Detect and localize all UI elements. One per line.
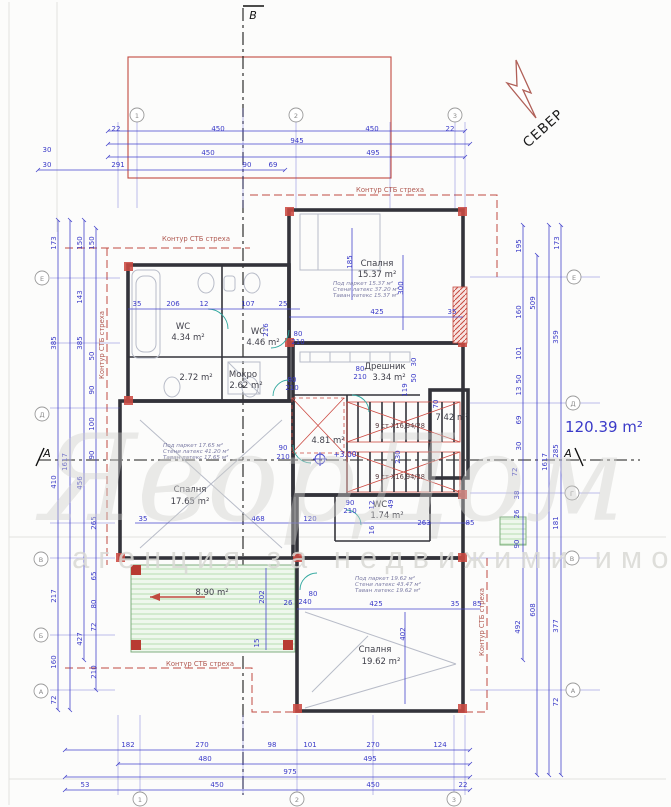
dimension-label: 12: [200, 300, 209, 308]
dimension-label: 50: [88, 352, 96, 361]
dimension-label: 300: [397, 281, 405, 294]
grid-row-right-2: Д: [570, 400, 575, 408]
dimension-label: 69: [269, 161, 278, 169]
dimension-label: 50: [515, 375, 523, 384]
dimension-label: 90: [88, 386, 96, 395]
room-bedroom-bottom-note: Таван латекс 19.62 м²: [355, 587, 421, 594]
grid-row-left-4: Б: [39, 632, 43, 640]
dimension-label: 385: [76, 336, 84, 349]
dimension-label: 22: [112, 125, 121, 133]
grid-col-1: 1: [135, 112, 139, 120]
dimension-label: 35: [448, 308, 457, 316]
room-bedroom-bottom-area: 19.62 m²: [362, 657, 401, 667]
floor-plan-canvas: В А А: [0, 0, 671, 807]
north-label: СЕВЕР: [520, 106, 567, 151]
dimension-label: 270: [366, 741, 379, 749]
dimension-label: 119: [401, 383, 409, 396]
dimension-label: 240: [298, 598, 311, 606]
dimension-label: 70: [432, 400, 440, 409]
dimension-label: 495: [366, 149, 379, 157]
room-wc-mid-area: 4.46 m²: [246, 338, 279, 348]
dimension-label: 143: [76, 290, 84, 303]
room-wc-left-area: 4.34 m²: [171, 333, 204, 343]
dimension-label: 80: [294, 330, 303, 338]
grid-row-left-5: А: [39, 688, 44, 696]
dimension-label: 217: [50, 589, 58, 602]
section-marker-top: В: [249, 9, 257, 22]
dimension-label: 450: [210, 781, 223, 789]
dimension-label: 150: [76, 236, 84, 249]
room-bedroom-bottom-name: Спалня: [359, 645, 392, 655]
dimension-label: 72: [50, 696, 58, 705]
dimension-label: 80: [90, 600, 98, 609]
room-bedroom-top-area: 15.37 m²: [358, 270, 397, 280]
grid-row-right-1: Е: [572, 274, 576, 282]
dimension-label: 216: [262, 323, 270, 337]
dimension-label: 427: [76, 632, 84, 645]
grid-row-left-3: В: [39, 556, 43, 564]
dimension-label: 210: [291, 338, 304, 346]
dimension-label: 173: [50, 236, 58, 249]
dimension-label: 509: [529, 296, 537, 309]
room-bedroom-top-name: Спалня: [361, 259, 394, 269]
grid-col-3: 3: [453, 112, 457, 120]
dimension-label: 402: [399, 627, 407, 640]
grid-row-right-5: А: [571, 687, 576, 695]
dimension-label: 270: [195, 741, 208, 749]
grid-col-2: 2: [294, 112, 298, 120]
dimension-label: 22: [446, 125, 455, 133]
dimension-label: 72: [90, 623, 98, 632]
grid-col-2b: 2: [295, 796, 299, 804]
north-arrow-icon: [507, 60, 536, 118]
dimension-label: 206: [166, 300, 180, 308]
dimension-label: 210: [285, 384, 298, 392]
dimension-label: 101: [515, 346, 523, 359]
watermark-footer: агенция за недвижими имоти: [72, 540, 671, 575]
dimension-label: 124: [433, 741, 447, 749]
dimension-label: 425: [369, 600, 382, 608]
dimension-label: 480: [198, 755, 211, 763]
dimension-label: 182: [121, 741, 134, 749]
dimension-label: 195: [515, 239, 523, 252]
eave-label-right: Контур СТБ стреха: [478, 588, 486, 656]
dimension-label: 385: [50, 336, 58, 349]
dimension-label: 210: [353, 373, 366, 381]
dimension-label: 72: [552, 698, 560, 707]
dimension-label: 160: [50, 655, 58, 668]
dimension-label: 30: [43, 146, 52, 154]
dimension-label: 107: [241, 300, 254, 308]
room-terrace-area: 8.90 m²: [195, 588, 228, 598]
dimension-label: 90: [243, 161, 252, 169]
room-dreshnik-area: 3.34 m²: [372, 373, 405, 383]
dimension-label: 80: [356, 365, 365, 373]
dimension-label: 30: [410, 358, 418, 367]
dimension-label: 25: [279, 300, 288, 308]
dimension-label: 15: [253, 639, 261, 648]
dimension-label: 425: [370, 308, 383, 316]
dimension-label: 975: [283, 768, 296, 776]
room-bedroom-top-note: Стени латекс 37.20 м²: [333, 286, 400, 293]
dimension-label: 98: [268, 741, 277, 749]
dimension-label: 53: [81, 781, 90, 789]
room-wc-left-name: WC: [176, 322, 190, 332]
dimension-label: 492: [514, 620, 522, 633]
dimension-label: 450: [366, 781, 379, 789]
watermark-script: ЯворДом 1: [35, 410, 671, 549]
dimension-label: 450: [211, 125, 224, 133]
room-dreshnik-name: Дрешник: [364, 362, 405, 372]
eave-label-top: Контур СТБ стреха: [356, 186, 424, 194]
dimension-label: 80: [309, 590, 318, 598]
dimension-label: 945: [290, 137, 303, 145]
dimension-label: 450: [201, 149, 214, 157]
dimension-label: 101: [303, 741, 316, 749]
dimension-label: 80: [288, 376, 297, 384]
dimension-label: 377: [552, 619, 560, 632]
dimension-label: 291: [111, 161, 124, 169]
dimension-label: 85: [473, 600, 482, 608]
eave-label-upper-left: Контур СТБ стреха: [162, 235, 230, 243]
room-mokro-area: 2.62 m²: [229, 381, 262, 391]
grid-col-1b: 1: [138, 796, 142, 804]
dimension-label: 185: [346, 255, 354, 268]
dimension-label: 30: [43, 161, 52, 169]
dimension-label: 608: [529, 603, 537, 616]
dimension-label: 173: [553, 236, 561, 249]
eave-label-bottom: Контур СТБ стреха: [166, 660, 234, 668]
room-bedroom-bottom-note: Под паркет 19.62 м²: [355, 575, 416, 582]
dimension-label: 50: [410, 374, 418, 383]
room-hall-left-area: 2.72 m²: [179, 373, 212, 383]
room-bedroom-top-note: Таван латекс 15.37 м²: [333, 292, 399, 299]
dimension-label: 359: [552, 330, 560, 343]
dimension-label: 495: [363, 755, 376, 763]
dimension-label: 150: [88, 236, 96, 249]
dimension-label: 450: [365, 125, 378, 133]
dimension-label: 22: [459, 781, 468, 789]
room-bedroom-bottom-note: Стени латекс 43.47 м²: [355, 581, 422, 588]
grid-row-left-1: Е: [40, 275, 44, 283]
grid-col-3b: 3: [452, 796, 456, 804]
blueprint-page: В А А: [0, 0, 671, 807]
room-mokro-name: Мокро: [229, 370, 257, 380]
room-bedroom-top-note: Под паркет 15.37 м²: [333, 280, 394, 287]
dimension-label: 210: [90, 665, 98, 678]
dimension-label: 35: [451, 600, 460, 608]
terrace: [131, 565, 295, 652]
dimension-label: 160: [515, 305, 523, 318]
dimension-label: 26: [284, 599, 293, 607]
dimension-label: 202: [258, 590, 266, 603]
dimension-label: 35: [133, 300, 142, 308]
dimension-label: 13: [515, 387, 523, 396]
eave-label-left: Контур СТБ стреха: [98, 311, 106, 379]
